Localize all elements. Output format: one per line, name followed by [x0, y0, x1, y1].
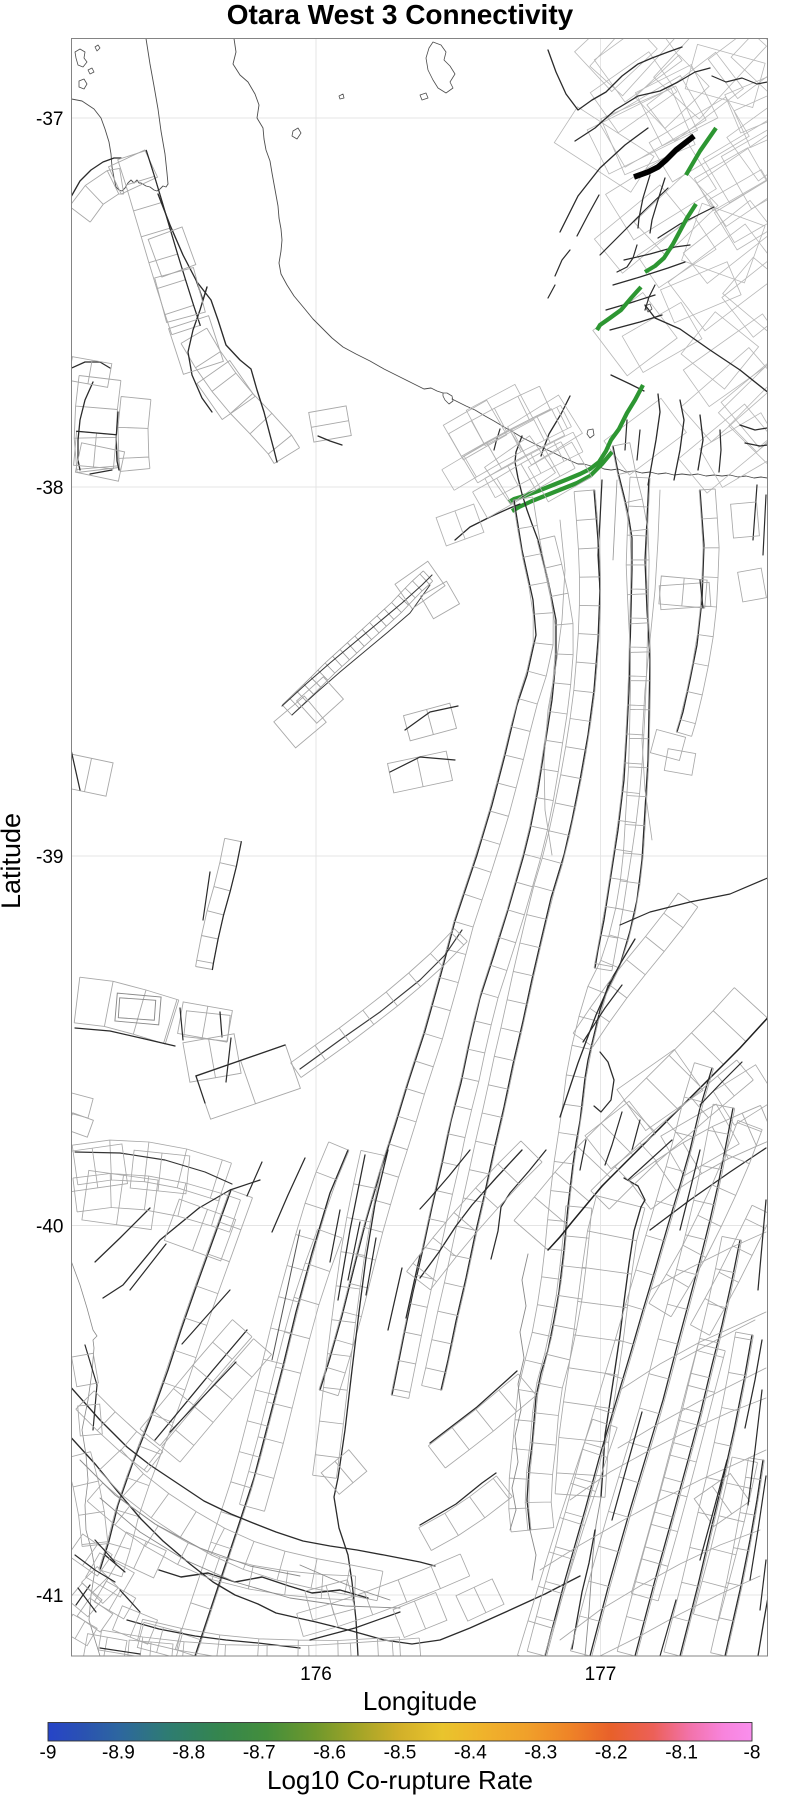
svg-text:-8.8: -8.8 [172, 1743, 205, 1764]
svg-text:176: 176 [300, 1664, 332, 1685]
svg-text:-8.2: -8.2 [595, 1743, 628, 1764]
svg-text:Otara West 3 Connectivity: Otara West 3 Connectivity [227, 0, 574, 30]
svg-text:-41: -41 [36, 1586, 63, 1607]
svg-text:Latitude: Latitude [0, 813, 26, 909]
svg-text:-9: -9 [40, 1743, 57, 1764]
svg-text:Log10 Co-rupture Rate: Log10 Co-rupture Rate [267, 1765, 533, 1795]
svg-text:-8.7: -8.7 [243, 1743, 276, 1764]
svg-text:-8.4: -8.4 [454, 1743, 487, 1764]
svg-text:-8.1: -8.1 [665, 1743, 698, 1764]
svg-text:-8.5: -8.5 [384, 1743, 417, 1764]
svg-text:Longitude: Longitude [363, 1686, 477, 1716]
svg-text:-8.3: -8.3 [524, 1743, 557, 1764]
svg-text:-8.6: -8.6 [313, 1743, 346, 1764]
svg-text:-8: -8 [744, 1743, 761, 1764]
svg-text:-40: -40 [36, 1217, 63, 1238]
svg-text:-38: -38 [36, 478, 63, 499]
svg-text:-39: -39 [36, 847, 63, 868]
svg-text:-37: -37 [36, 109, 63, 130]
svg-text:177: 177 [585, 1664, 617, 1685]
svg-text:-8.9: -8.9 [102, 1743, 135, 1764]
